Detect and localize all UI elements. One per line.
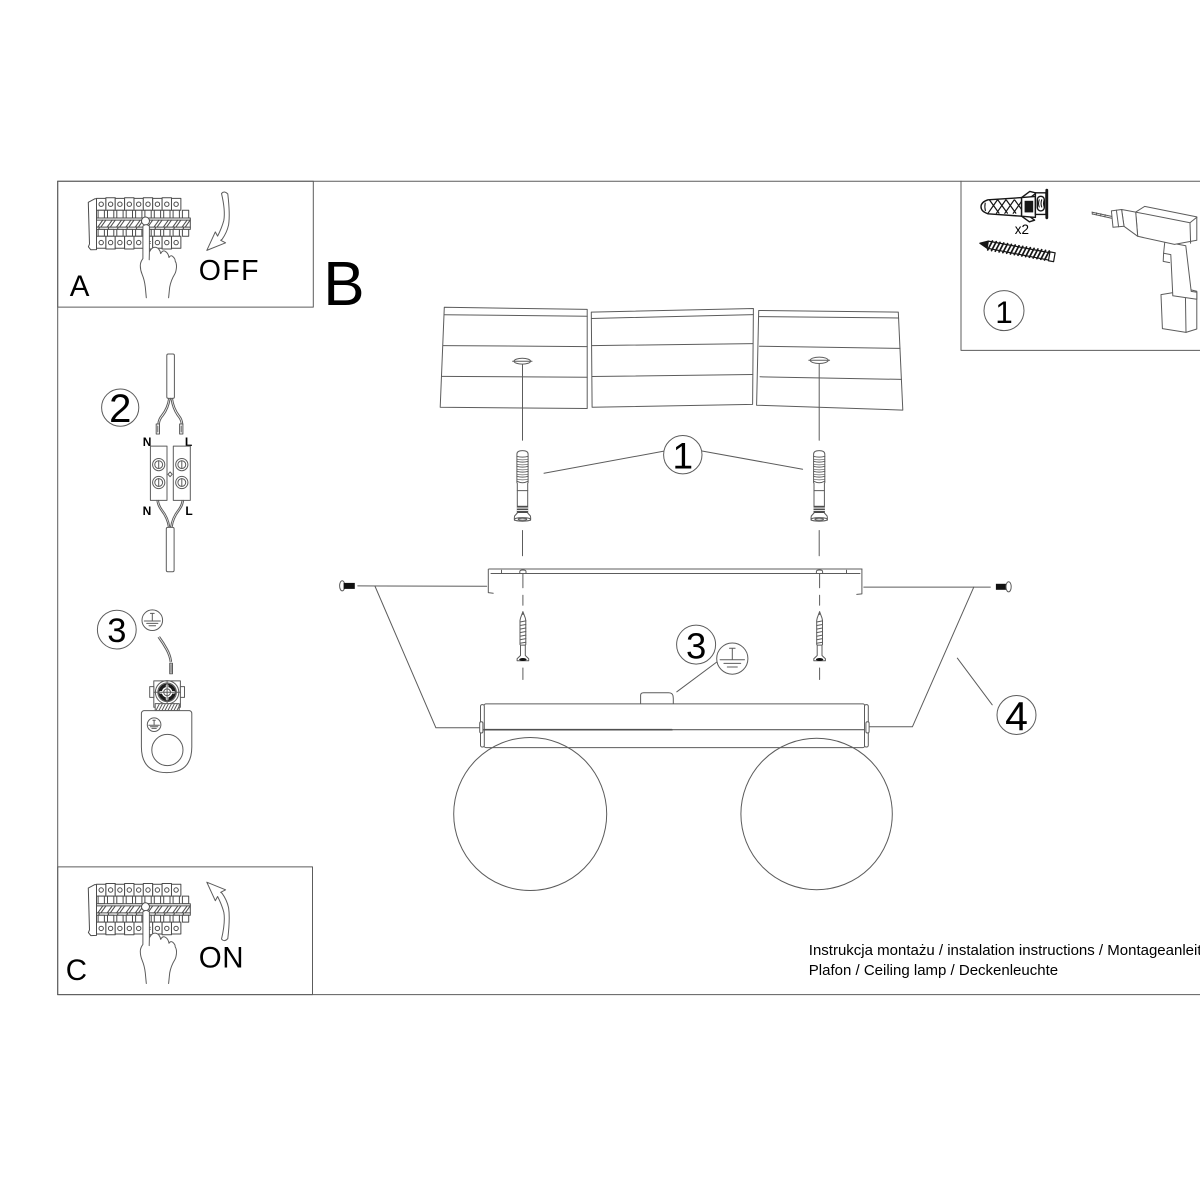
svg-text:L: L (185, 504, 192, 518)
svg-text:4: 4 (1005, 694, 1028, 740)
svg-text:B: B (323, 250, 364, 319)
svg-text:2: 2 (109, 387, 131, 431)
svg-text:ON: ON (199, 942, 244, 975)
svg-text:3: 3 (107, 612, 126, 650)
svg-text:C: C (66, 954, 87, 987)
svg-text:1: 1 (995, 294, 1013, 330)
svg-text:x2: x2 (1015, 222, 1029, 237)
svg-text:N: N (143, 504, 152, 518)
svg-text:A: A (70, 270, 90, 303)
svg-text:3: 3 (686, 626, 706, 667)
svg-text:1: 1 (673, 436, 694, 477)
svg-text:Instrukcja montażu / instalati: Instrukcja montażu / instalation instruc… (809, 942, 1200, 959)
svg-text:OFF: OFF (199, 255, 260, 287)
svg-text:Plafon / Ceiling lamp / Decken: Plafon / Ceiling lamp / Deckenleuchte (809, 962, 1058, 979)
